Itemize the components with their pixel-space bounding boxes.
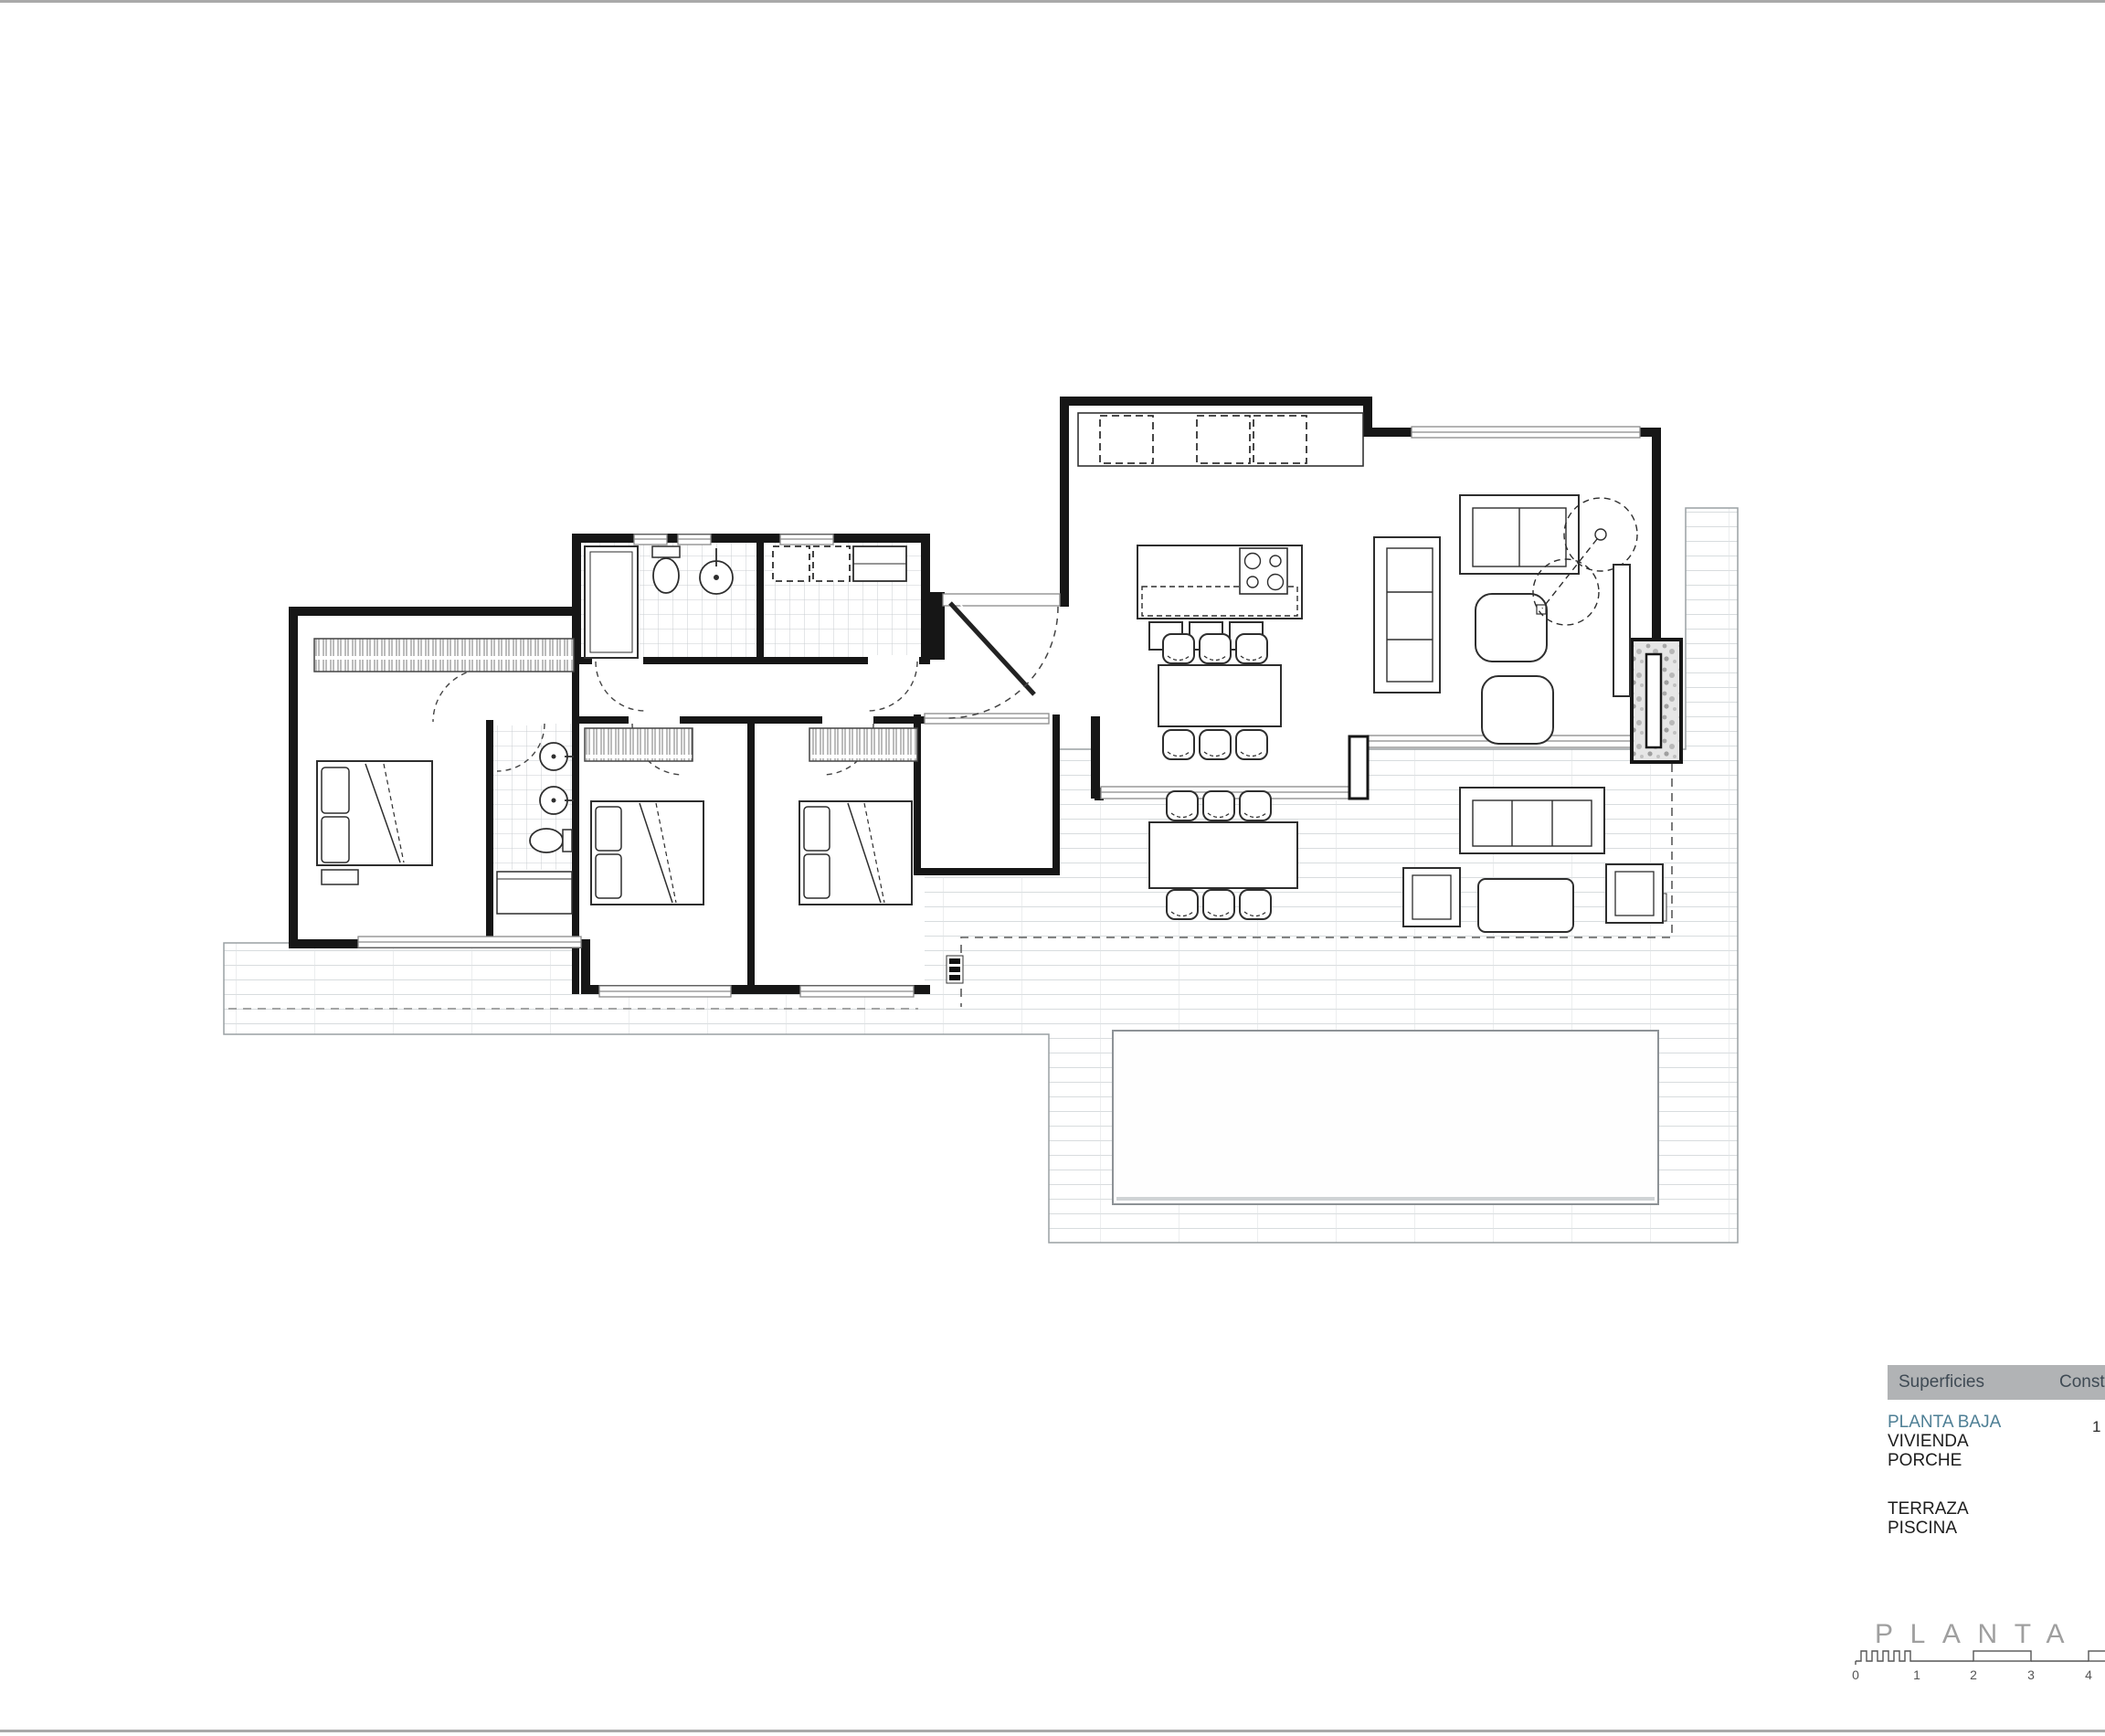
- drawing-sheet: Superficies Const PLANTA BAJA VIVIENDA P…: [0, 0, 2105, 1736]
- legend-header-const: Const: [2059, 1365, 2105, 1400]
- scale-teeth: [1856, 1651, 1917, 1661]
- tv-sideboard: [1613, 565, 1630, 696]
- scale-bar: 0 1 2 3 4: [1838, 1643, 2105, 1699]
- floor-plan: [0, 0, 2105, 1736]
- outdoor-armchair: [1606, 864, 1663, 923]
- outdoor-sofa: [1460, 788, 1604, 853]
- legend-table: Superficies Const PLANTA BAJA VIVIENDA P…: [1888, 1365, 2105, 1538]
- armchair: [1482, 676, 1553, 744]
- bathroom-b-fixtures: [773, 546, 906, 581]
- outdoor-armchair: [1403, 868, 1460, 926]
- bed-3: [799, 801, 912, 905]
- sofa-three-seat: [1374, 537, 1440, 693]
- pool: [1113, 1031, 1658, 1204]
- scale-label-1: 1: [1913, 1667, 1920, 1682]
- bed-master: [317, 761, 432, 884]
- scale-label-3: 3: [2027, 1667, 2035, 1682]
- legend-row-terraza: TERRAZA: [1888, 1499, 2105, 1519]
- scale-label-0: 0: [1852, 1667, 1859, 1682]
- scale-label-2: 2: [1970, 1667, 1977, 1682]
- legend-header: Superficies Const: [1888, 1365, 2105, 1400]
- legend-row-porche: PORCHE: [1888, 1451, 2105, 1470]
- coffee-table: [1478, 879, 1573, 932]
- legend-partial-value: 1: [2092, 1418, 2103, 1436]
- legend-row-planta-baja: PLANTA BAJA: [1888, 1413, 2105, 1432]
- scale-label-4: 4: [2085, 1667, 2092, 1682]
- legend-header-superficies: Superficies: [1899, 1365, 1984, 1400]
- dining-table-indoor: [1158, 634, 1281, 759]
- fireplace: [1632, 640, 1681, 762]
- armchair: [1476, 594, 1547, 662]
- legend-row-vivienda: VIVIENDA: [1888, 1432, 2105, 1451]
- sofa-two-seat: [1460, 495, 1579, 574]
- legend-row-gap: [1888, 1470, 2105, 1499]
- legend-row-piscina: PISCINA: [1888, 1519, 2105, 1538]
- bed-2: [591, 801, 703, 905]
